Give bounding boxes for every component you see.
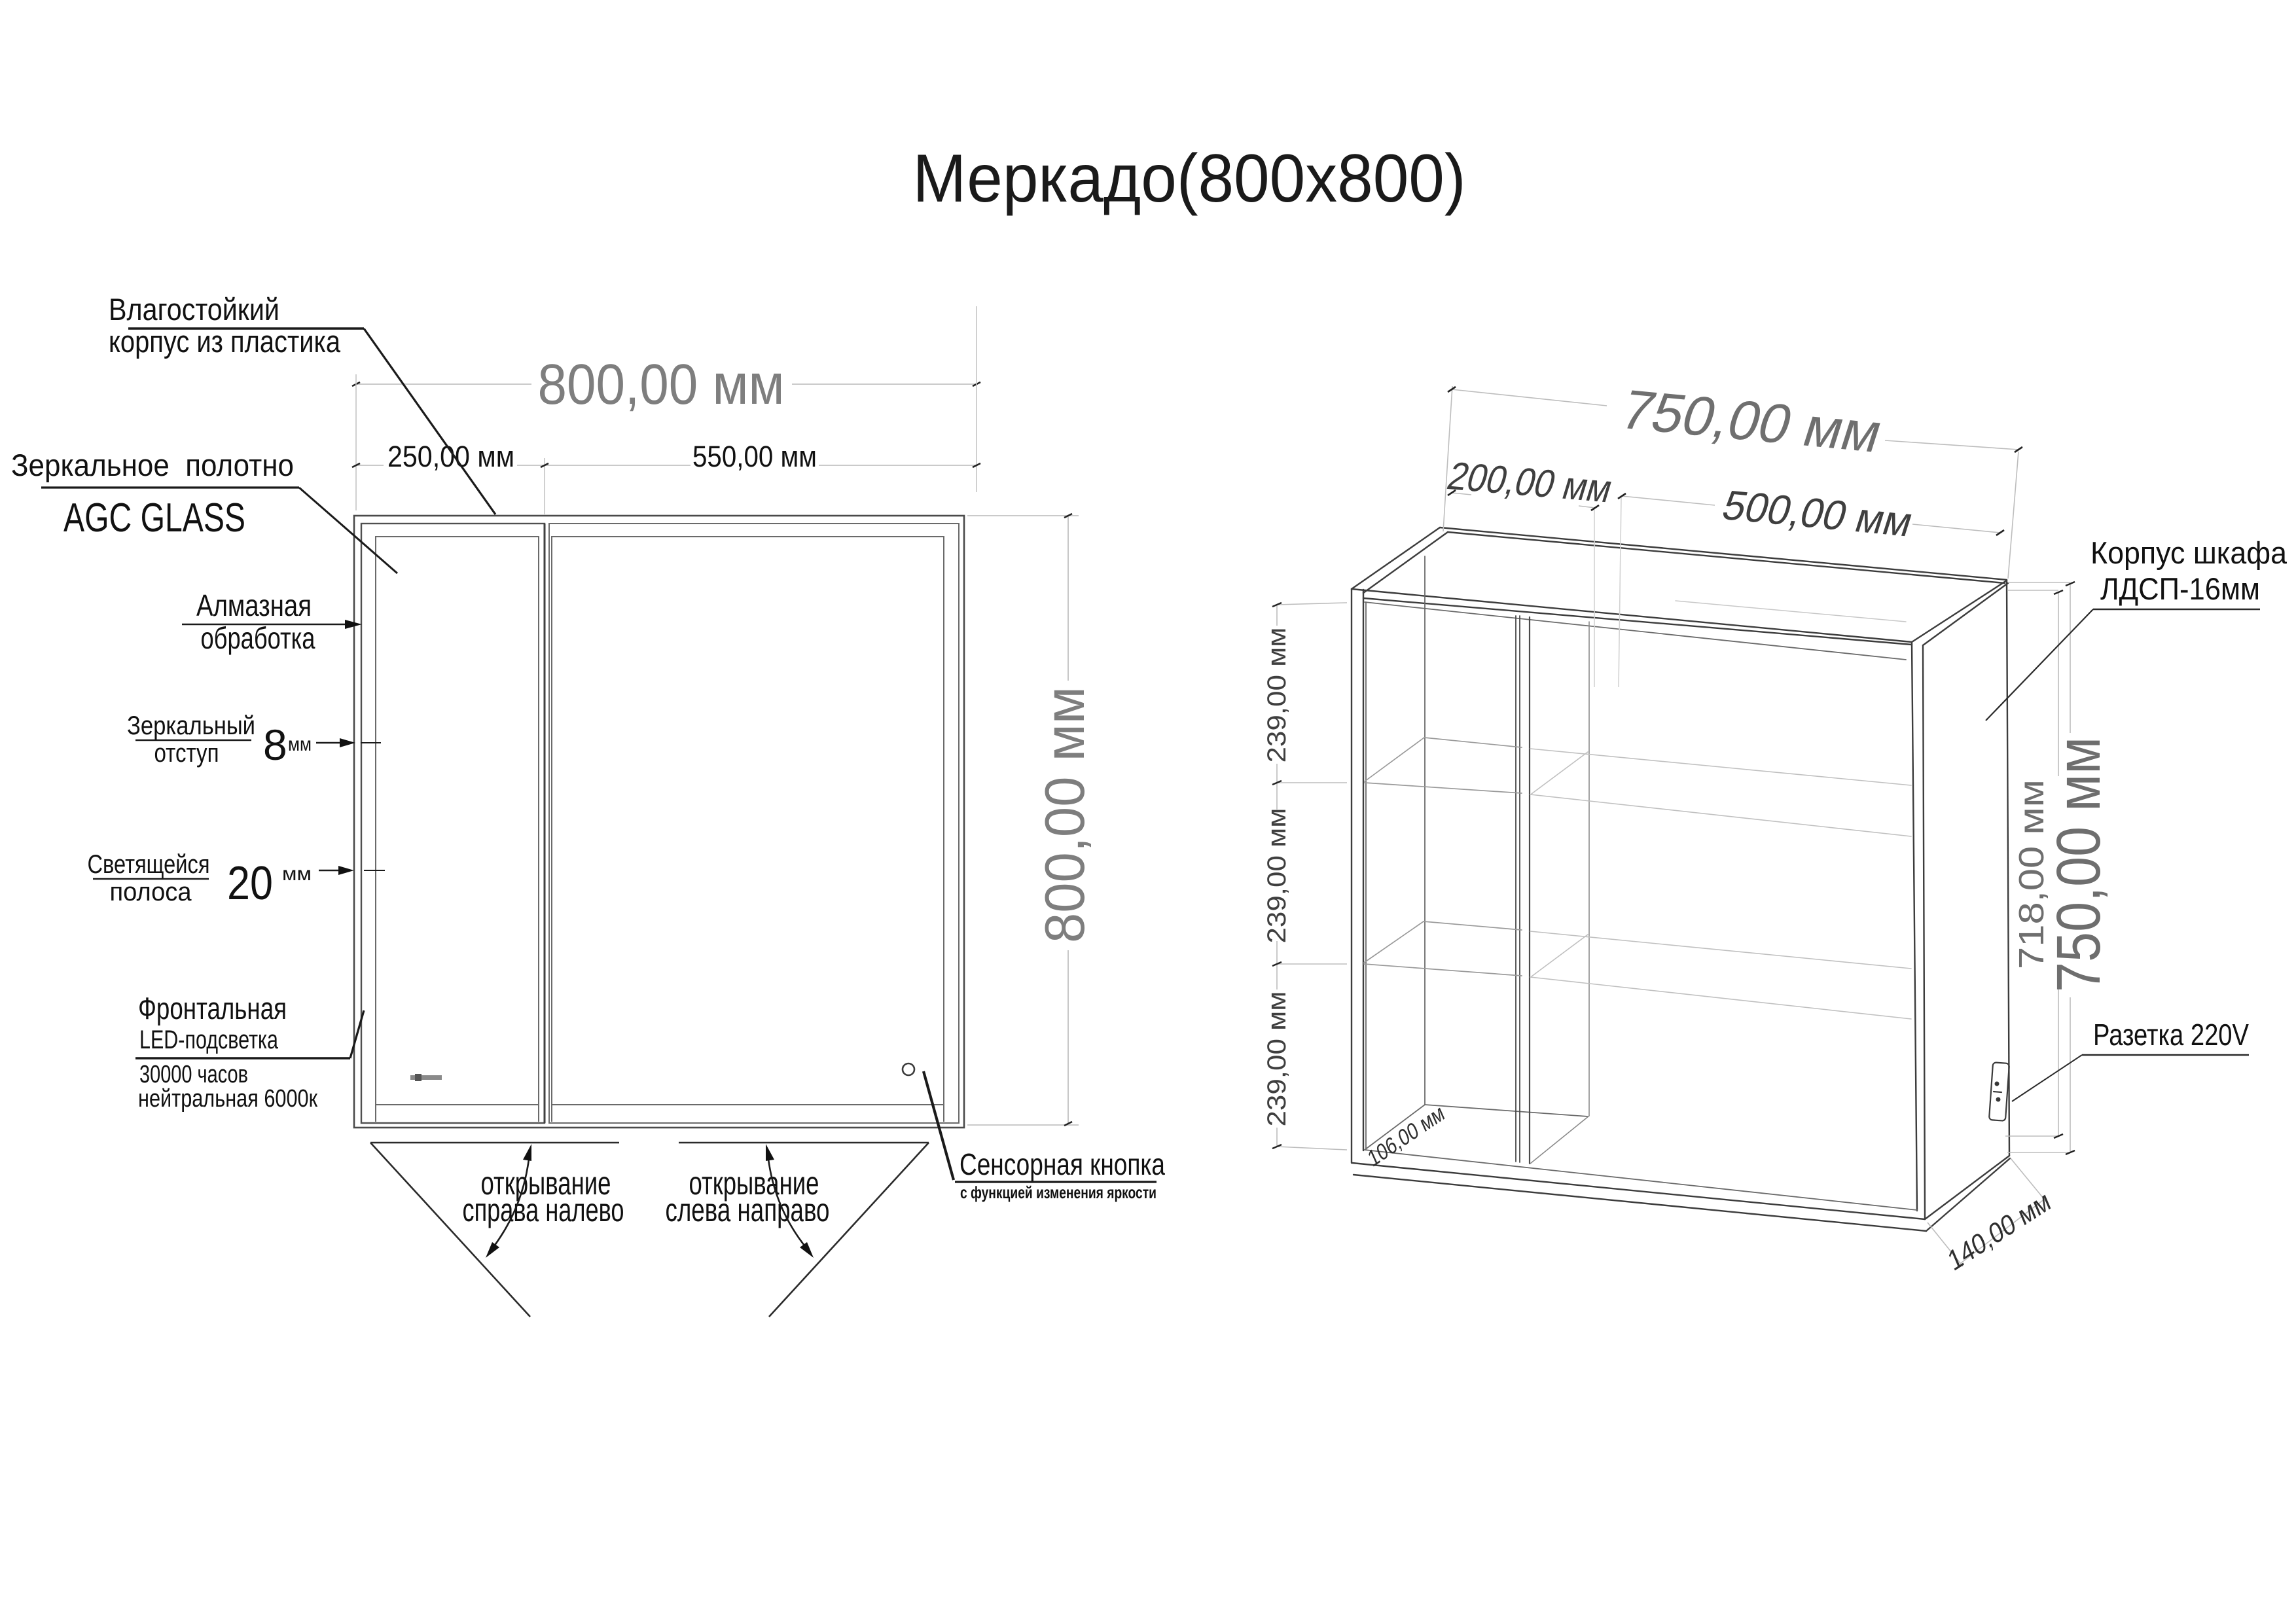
svg-text:8: 8: [263, 721, 287, 769]
svg-text:мм: мм: [282, 863, 312, 885]
svg-text:140,00 мм: 140,00 мм: [1944, 1185, 2054, 1277]
svg-text:800,00 мм: 800,00 мм: [1034, 687, 1096, 943]
svg-text:мм: мм: [288, 734, 312, 755]
svg-text:239,00 мм: 239,00 мм: [1263, 628, 1291, 763]
svg-text:239,00 мм: 239,00 мм: [1263, 991, 1291, 1127]
svg-text:LED-подсветка: LED-подсветка: [139, 1026, 279, 1054]
svg-text:Фронтальная: Фронтальная: [138, 991, 287, 1026]
svg-text:Меркадо(800х800): Меркадо(800х800): [913, 141, 1466, 217]
svg-text:Алмазная: Алмазная: [196, 588, 312, 622]
svg-text:отступ: отступ: [154, 739, 219, 768]
svg-text:750,00 мм: 750,00 мм: [2044, 737, 2113, 992]
svg-text:Влагостойкий: Влагостойкий: [109, 292, 279, 327]
svg-text:30000 часов: 30000 часов: [139, 1061, 248, 1088]
svg-text:нейтральная 6000к: нейтральная 6000к: [138, 1085, 317, 1113]
svg-text:Зеркальное полотно: Зеркальное полотно: [11, 448, 294, 482]
svg-text:AGC GLASS: AGC GLASS: [63, 495, 245, 541]
svg-text:500,00 мм: 500,00 мм: [1717, 482, 1919, 546]
svg-text:20: 20: [227, 857, 273, 910]
svg-text:Сенсорная кнопка: Сенсорная кнопка: [960, 1147, 1165, 1181]
svg-text:550,00 мм: 550,00 мм: [692, 440, 817, 473]
svg-text:Светящейся: Светящейся: [88, 850, 210, 879]
svg-text:Зеркальный: Зеркальный: [127, 711, 255, 740]
svg-text:Корпус шкафа: Корпус шкафа: [2090, 535, 2287, 570]
svg-text:слева направо: слева направо: [666, 1192, 830, 1228]
svg-text:ЛДСП-16мм: ЛДСП-16мм: [2100, 571, 2260, 606]
svg-text:750,00 мм: 750,00 мм: [1614, 379, 1890, 464]
svg-text:250,00 мм: 250,00 мм: [387, 440, 514, 473]
svg-text:справа налево: справа налево: [463, 1192, 624, 1228]
svg-text:200,00 мм: 200,00 мм: [1443, 454, 1618, 510]
svg-text:обработка: обработка: [201, 621, 315, 655]
svg-text:800,00 мм: 800,00 мм: [538, 353, 785, 416]
svg-text:Разетка 220V: Разетка 220V: [2093, 1018, 2249, 1052]
svg-text:239,00 мм: 239,00 мм: [1263, 808, 1291, 944]
svg-text:106,00 мм: 106,00 мм: [1365, 1100, 1448, 1172]
svg-text:с функцией изменения яркости: с функцией изменения яркости: [960, 1183, 1157, 1202]
svg-text:полоса: полоса: [110, 878, 192, 906]
